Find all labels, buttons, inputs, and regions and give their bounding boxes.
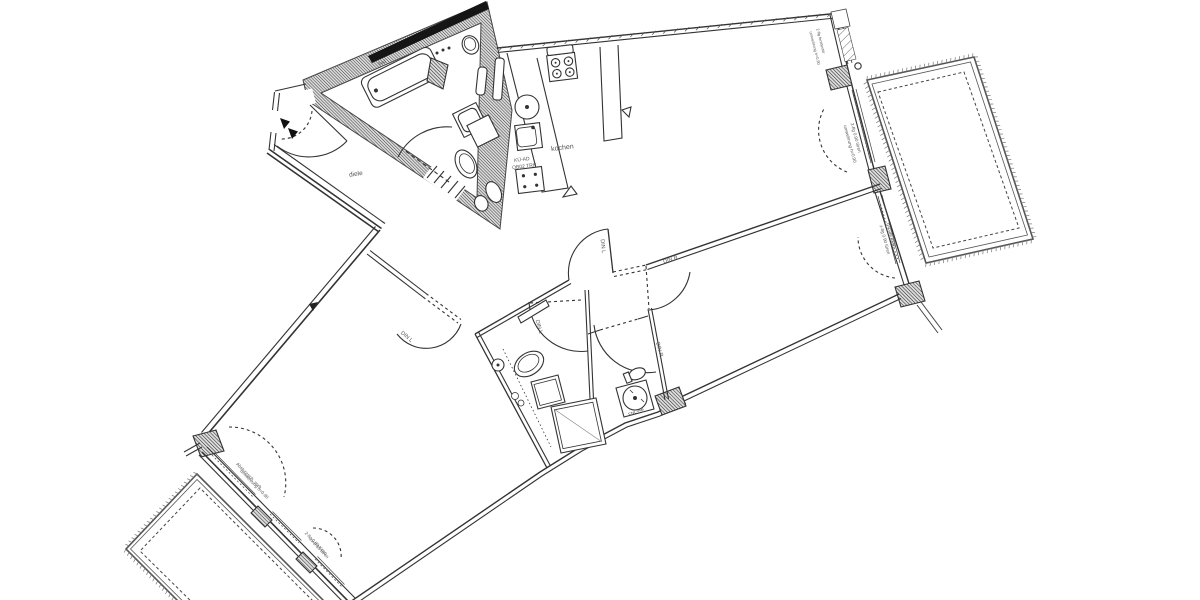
- svg-text:DIN L: DIN L: [534, 319, 544, 334]
- svg-text:diele: diele: [349, 170, 364, 179]
- svg-text:h≈0.95 türen: h≈0.95 türen: [309, 538, 330, 560]
- svg-text:DIN R: DIN R: [663, 255, 679, 265]
- svg-text:kochen: kochen: [551, 143, 574, 153]
- svg-text:DIN L: DIN L: [599, 239, 606, 254]
